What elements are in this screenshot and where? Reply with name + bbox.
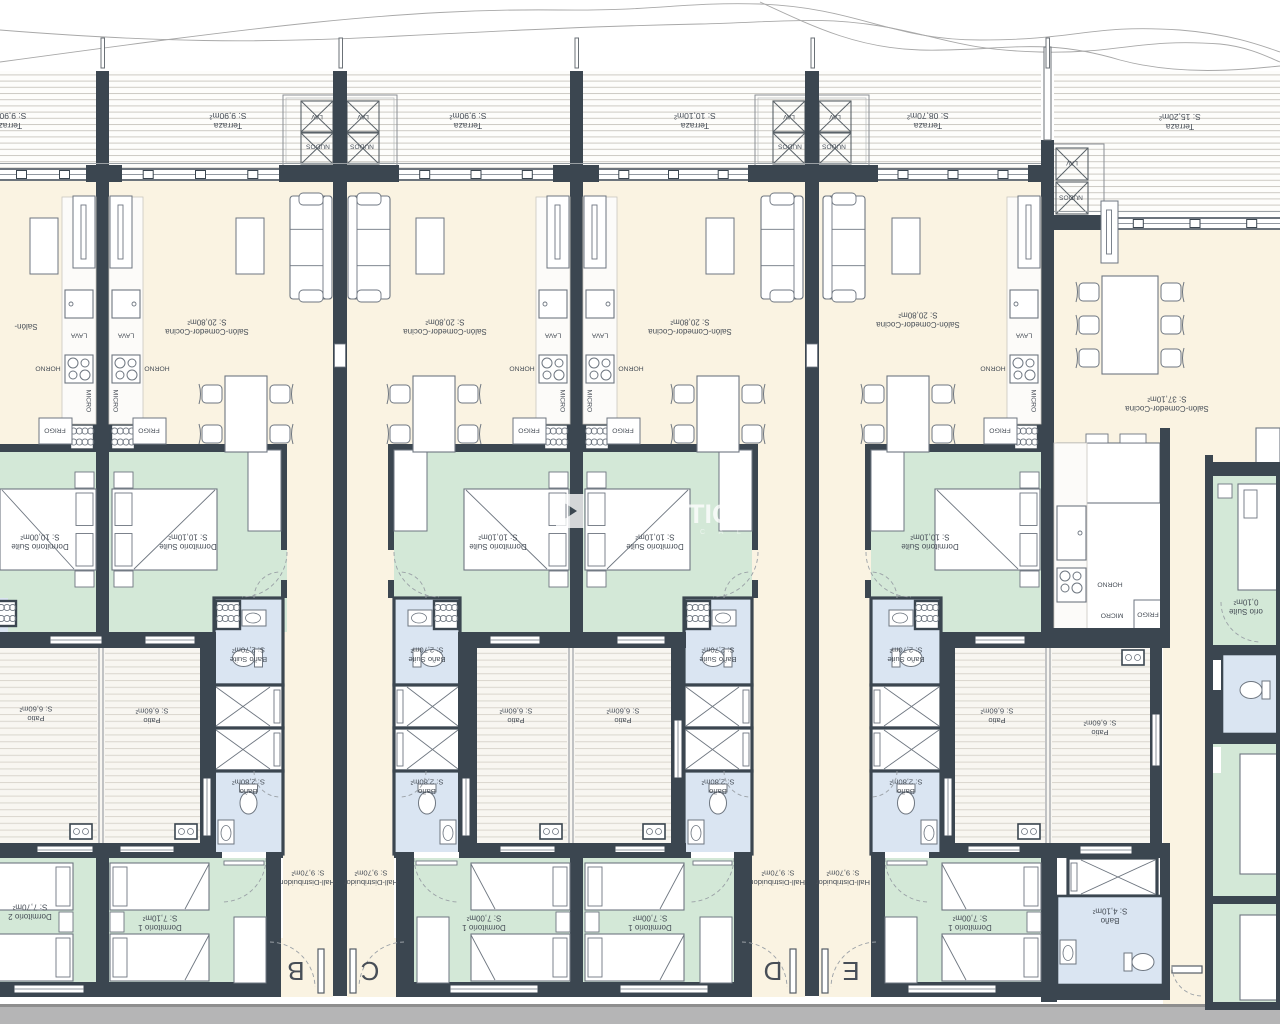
svg-text:S: 7,10m²: S: 7,10m² xyxy=(142,913,177,922)
svg-text:NUDOS: NUDOS xyxy=(305,143,329,150)
svg-text:S: 6,60m²: S: 6,60m² xyxy=(19,705,52,714)
svg-text:Hall-Distribuidor: Hall-Distribuidor xyxy=(816,878,870,887)
svg-text:HORNO: HORNO xyxy=(35,365,60,372)
svg-text:S: 10,10m²: S: 10,10m² xyxy=(674,111,716,121)
svg-text:Salón-Comedor-Cocina: Salón-Comedor-Cocina xyxy=(165,327,249,336)
svg-text:S: 2,70m²: S: 2,70m² xyxy=(410,646,443,655)
svg-text:HORNO: HORNO xyxy=(509,365,534,372)
svg-text:S: 7,00m²: S: 7,00m² xyxy=(952,913,987,922)
svg-text:HORNO: HORNO xyxy=(1097,581,1122,588)
svg-text:LAV: LAV xyxy=(310,113,322,120)
svg-text:Terraza: Terraza xyxy=(681,121,710,131)
svg-text:Terraza: Terraza xyxy=(914,121,943,131)
svg-text:S: 10,10m²: S: 10,10m² xyxy=(168,532,207,541)
svg-text:S: 6,60m²: S: 6,60m² xyxy=(135,707,168,716)
svg-text:FRIGO: FRIGO xyxy=(612,427,634,434)
svg-text:Dormitorio Suite: Dormitorio Suite xyxy=(626,542,684,551)
svg-text:MICRO: MICRO xyxy=(1030,390,1037,413)
svg-text:Dormitorio 2: Dormitorio 2 xyxy=(8,912,52,921)
svg-text:Baño Suite: Baño Suite xyxy=(699,655,736,664)
svg-text:FRIGO: FRIGO xyxy=(1137,611,1159,618)
svg-text:Terraza: Terraza xyxy=(454,121,483,131)
svg-text:S: 2,70m²: S: 2,70m² xyxy=(232,646,265,655)
svg-text:Dormitorio Suite: Dormitorio Suite xyxy=(901,542,959,551)
svg-text:orio Suite: orio Suite xyxy=(1229,607,1263,616)
svg-text:Hall-Distribuidor: Hall-Distribuidor xyxy=(281,878,335,887)
svg-text:LAV: LAV xyxy=(356,113,368,120)
svg-text:MICRO: MICRO xyxy=(1101,612,1124,619)
svg-text:NUDOS: NUDOS xyxy=(1058,194,1082,201)
svg-text:S: 6,60m²: S: 6,60m² xyxy=(980,707,1013,716)
svg-text:FRIGO: FRIGO xyxy=(518,427,540,434)
svg-text:Patio: Patio xyxy=(143,716,160,725)
svg-text:S: 6,60m²: S: 6,60m² xyxy=(499,707,532,716)
svg-text:S: 37,10m²: S: 37,10m² xyxy=(1147,394,1186,403)
svg-text:MICRO: MICRO xyxy=(112,390,119,413)
svg-text:S: 9,90m²: S: 9,90m² xyxy=(0,111,26,121)
svg-text:B: B xyxy=(287,956,304,986)
svg-text:LAV: LAV xyxy=(782,113,794,120)
svg-text:S: 7,00m²: S: 7,00m² xyxy=(632,913,667,922)
svg-text:Baño Suite: Baño Suite xyxy=(408,655,445,664)
svg-text:Salón-Comedor-Cocina: Salón-Comedor-Cocina xyxy=(403,327,487,336)
svg-text:Dormitorio Suite: Dormitorio Suite xyxy=(11,542,69,551)
svg-text:S: 6,60m²: S: 6,60m² xyxy=(606,707,639,716)
svg-text:S: 9,70m²: S: 9,70m² xyxy=(826,869,859,878)
svg-text:S: 10,00m²: S: 10,00m² xyxy=(20,532,59,541)
svg-text:S: 9,90m²: S: 9,90m² xyxy=(209,111,246,121)
svg-text:Terraza: Terraza xyxy=(0,121,22,131)
svg-text:NUDOS: NUDOS xyxy=(349,143,373,150)
svg-text:FRIGO: FRIGO xyxy=(44,427,66,434)
svg-text:HORNO: HORNO xyxy=(618,365,643,372)
svg-text:Baño: Baño xyxy=(1100,916,1119,925)
svg-text:S: 15,20m²: S: 15,20m² xyxy=(1159,112,1201,122)
svg-text:LAV: LAV xyxy=(828,113,840,120)
svg-text:Salón-Comedor-Cocina: Salón-Comedor-Cocina xyxy=(876,320,960,329)
svg-text:LAV: LAV xyxy=(1065,159,1077,166)
svg-text:S: 2,80m²: S: 2,80m² xyxy=(232,778,265,787)
svg-text:Patio: Patio xyxy=(1091,728,1108,737)
svg-text:S: 9,70m²: S: 9,70m² xyxy=(291,869,324,878)
svg-text:S: 6,60m²: S: 6,60m² xyxy=(1083,719,1116,728)
svg-text:Baño: Baño xyxy=(418,787,436,796)
svg-text:NUDOS: NUDOS xyxy=(821,143,845,150)
svg-text:S: 10,10m²: S: 10,10m² xyxy=(478,532,517,541)
svg-text:Patio: Patio xyxy=(988,716,1005,725)
svg-text:S: 2,70m²: S: 2,70m² xyxy=(701,646,734,655)
svg-text:Hall-Distribuidor: Hall-Distribuidor xyxy=(344,878,398,887)
svg-text:S: 20,80m²: S: 20,80m² xyxy=(425,317,464,326)
svg-text:S: 10,10m²: S: 10,10m² xyxy=(910,532,949,541)
svg-text:Salón-Comedor-Cocina: Salón-Comedor-Cocina xyxy=(648,327,732,336)
svg-text:LAVA: LAVA xyxy=(70,332,87,339)
svg-text:0,10m²: 0,10m² xyxy=(1233,597,1258,606)
svg-text:Hall-Distribuidor: Hall-Distribuidor xyxy=(751,878,805,887)
svg-text:Salón-Comedor-Cocina: Salón-Comedor-Cocina xyxy=(1125,404,1209,413)
svg-text:Patio: Patio xyxy=(614,716,631,725)
svg-text:Dormitorio 1: Dormitorio 1 xyxy=(948,923,992,932)
svg-text:Baño: Baño xyxy=(897,787,915,796)
svg-text:Baño: Baño xyxy=(240,787,258,796)
svg-text:Patio: Patio xyxy=(507,716,524,725)
svg-text:Terraza: Terraza xyxy=(1166,122,1195,132)
svg-text:E: E xyxy=(842,956,859,986)
svg-text:NUDOS: NUDOS xyxy=(777,143,801,150)
svg-text:Terraza: Terraza xyxy=(214,121,243,131)
svg-text:FRIGO: FRIGO xyxy=(138,427,160,434)
svg-text:S: 20,80m²: S: 20,80m² xyxy=(670,317,709,326)
svg-text:C A L: C A L xyxy=(700,529,747,536)
svg-text:S: 10,10m²: S: 10,10m² xyxy=(635,532,674,541)
svg-text:Salón-: Salón- xyxy=(14,322,37,331)
svg-text:S: 7,00m²: S: 7,00m² xyxy=(466,913,501,922)
svg-text:Dormitorio 1: Dormitorio 1 xyxy=(138,923,182,932)
svg-text:Baño Suite: Baño Suite xyxy=(887,655,924,664)
svg-text:MICRO: MICRO xyxy=(559,390,566,413)
svg-text:C: C xyxy=(361,956,380,986)
svg-text:Dormitorio Suite: Dormitorio Suite xyxy=(159,542,217,551)
svg-text:S: 9,70m²: S: 9,70m² xyxy=(761,869,794,878)
svg-text:S: 4,10m²: S: 4,10m² xyxy=(1092,906,1127,915)
svg-text:HORNO: HORNO xyxy=(980,365,1005,372)
svg-text:Baño Suite: Baño Suite xyxy=(230,655,267,664)
svg-text:Patio: Patio xyxy=(27,714,44,723)
svg-text:Dormitorio Suite: Dormitorio Suite xyxy=(469,542,527,551)
svg-text:Dormitorio 1: Dormitorio 1 xyxy=(628,923,672,932)
svg-text:S: 2,80m²: S: 2,80m² xyxy=(701,778,734,787)
svg-text:LAVA: LAVA xyxy=(591,332,608,339)
svg-text:S: 9,70m²: S: 9,70m² xyxy=(354,869,387,878)
svg-text:HORNO: HORNO xyxy=(144,365,169,372)
svg-text:S: 08,70m²: S: 08,70m² xyxy=(907,111,949,121)
svg-text:S: 20,80m²: S: 20,80m² xyxy=(898,310,937,319)
svg-text:FRIGO: FRIGO xyxy=(989,427,1011,434)
svg-text:S: 2,80m²: S: 2,80m² xyxy=(889,778,922,787)
svg-text:D: D xyxy=(764,956,783,986)
svg-text:S: 2,80m²: S: 2,80m² xyxy=(410,778,443,787)
svg-text:S: 9,90m²: S: 9,90m² xyxy=(449,111,486,121)
svg-text:S: 20,80m²: S: 20,80m² xyxy=(187,317,226,326)
svg-text:MICRO: MICRO xyxy=(85,390,92,413)
svg-text:LAVA: LAVA xyxy=(544,332,561,339)
svg-text:Baño: Baño xyxy=(709,787,727,796)
svg-text:S: 7,70m²: S: 7,70m² xyxy=(12,902,47,911)
svg-text:LAVA: LAVA xyxy=(1015,332,1032,339)
svg-text:S: 2,70m²: S: 2,70m² xyxy=(889,646,922,655)
svg-text:MICRO: MICRO xyxy=(586,390,593,413)
svg-text:LAVA: LAVA xyxy=(117,332,134,339)
svg-text:Dormitorio 1: Dormitorio 1 xyxy=(462,923,506,932)
svg-text:TION: TION xyxy=(688,499,753,529)
